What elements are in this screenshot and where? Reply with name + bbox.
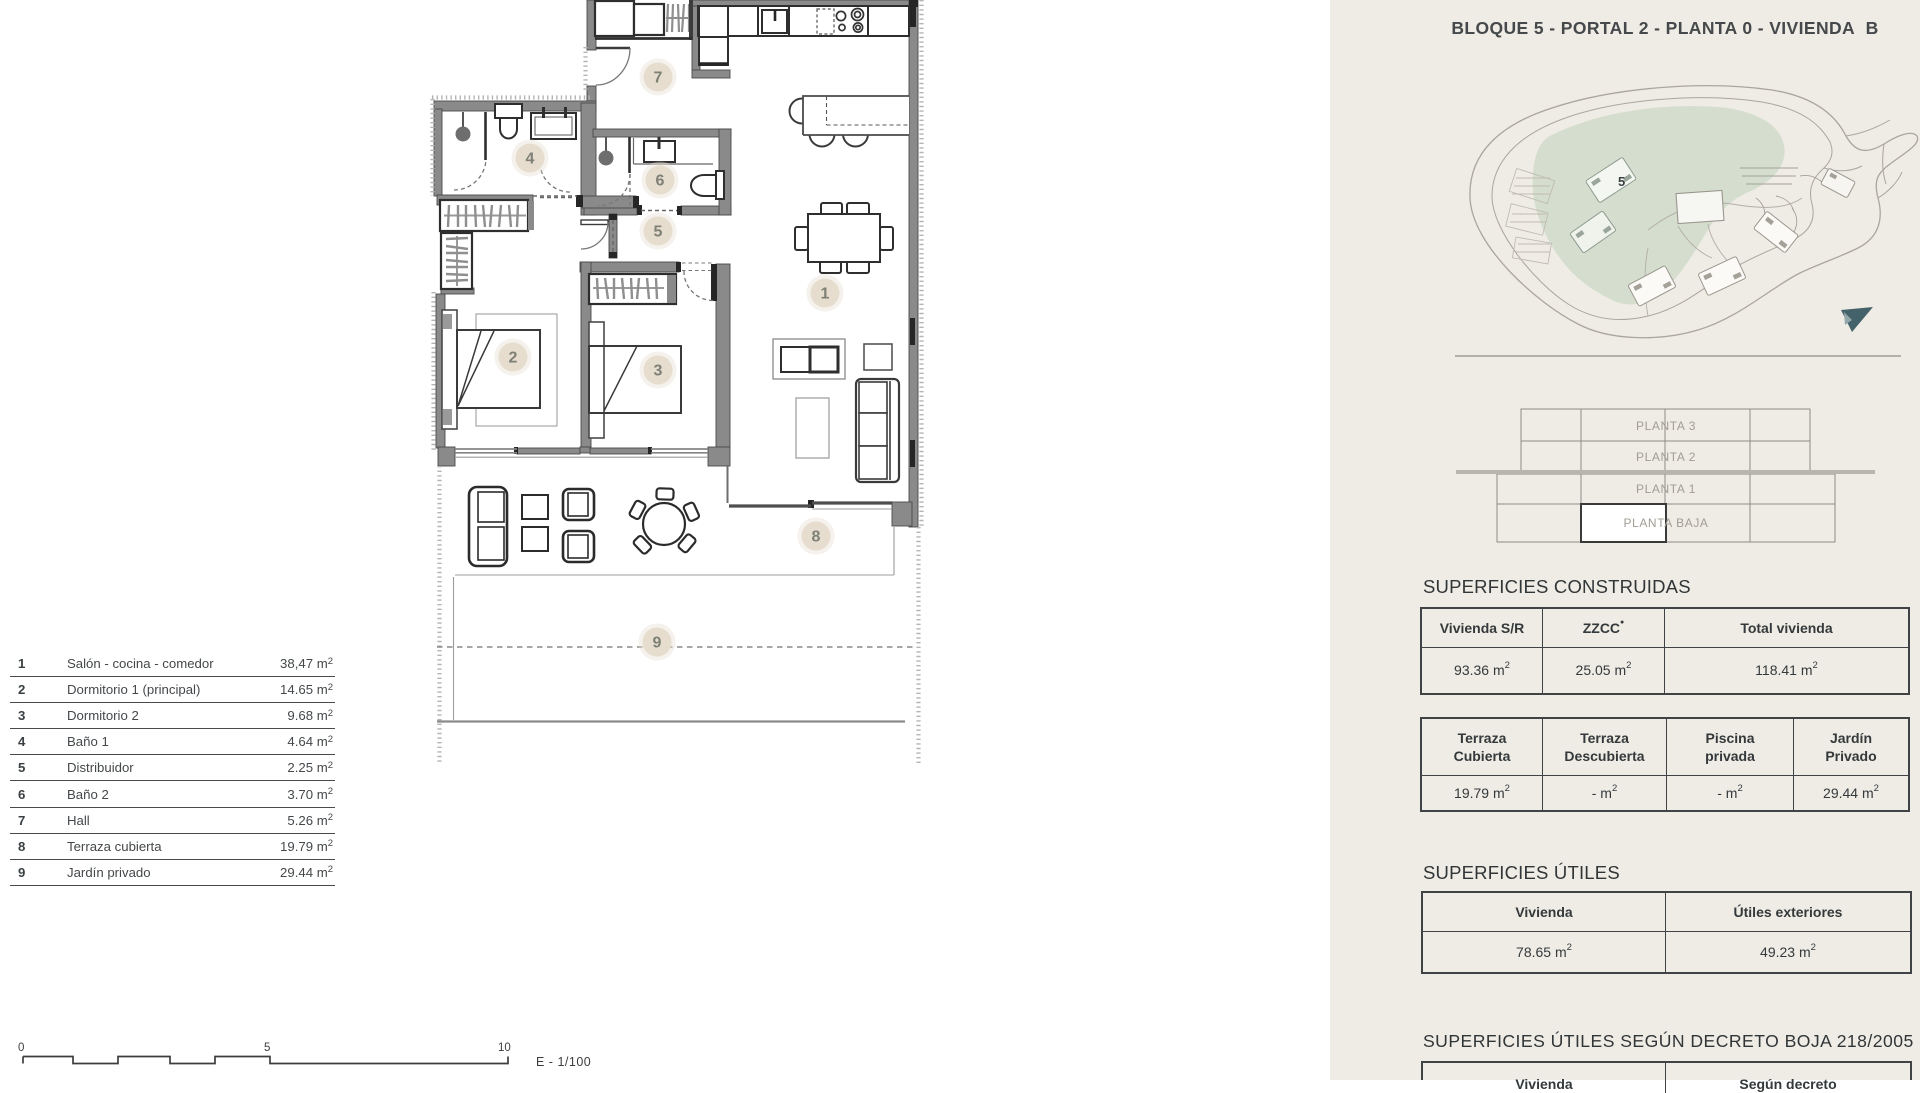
svg-text:9: 9 (653, 635, 662, 652)
svg-text:4: 4 (526, 151, 535, 168)
svg-text:5: 5 (654, 224, 663, 241)
svg-text:2: 2 (509, 350, 518, 367)
svg-text:PLANTA BAJA: PLANTA BAJA (1623, 516, 1708, 530)
svg-text:0: 0 (18, 1042, 24, 1054)
svg-text:1: 1 (821, 286, 830, 303)
svg-text:7: 7 (654, 70, 663, 87)
svg-text:5: 5 (1618, 174, 1625, 189)
svg-text:PLANTA 2: PLANTA 2 (1636, 450, 1696, 464)
svg-text:6: 6 (656, 173, 665, 190)
svg-text:10: 10 (498, 1042, 511, 1054)
svg-text:PLANTA 1: PLANTA 1 (1636, 482, 1696, 496)
svg-text:PLANTA 3: PLANTA 3 (1636, 419, 1696, 433)
svg-text:3: 3 (654, 363, 663, 380)
svg-text:E - 1/100: E - 1/100 (536, 1055, 591, 1069)
svg-text:5: 5 (264, 1042, 270, 1054)
svg-text:8: 8 (812, 529, 821, 546)
